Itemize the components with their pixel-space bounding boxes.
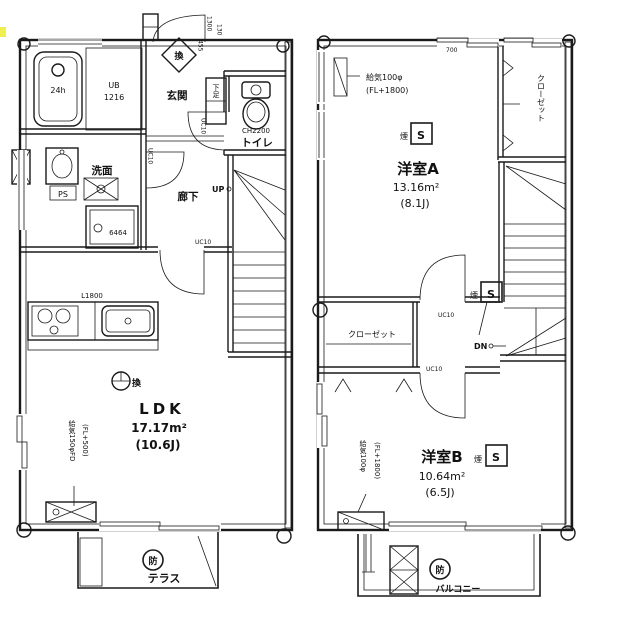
floor1-bathroom: 24h UB 1216 xyxy=(20,48,146,134)
floor1-hallway: 廊下 UC10 xyxy=(147,148,205,294)
dimension-700: 700 xyxy=(446,47,458,54)
ldk-vent-kanji: 換 xyxy=(132,377,142,389)
terrace-label: テラス xyxy=(148,572,181,585)
floor1-ldk: 換 LDK 17.17m² (10.6J) 給気150φFD (FL+500) xyxy=(68,372,187,506)
fireproof-mark-2: 防 xyxy=(435,564,444,576)
stairs-uc10: UC10 xyxy=(195,239,211,246)
washer-pan-size: 6464 xyxy=(109,229,127,237)
room-b-tatami: (6.5J) xyxy=(425,486,454,499)
dimension-130: 130 xyxy=(216,24,223,36)
smoke-detector-a-s: S xyxy=(417,129,425,142)
kitchen-sink xyxy=(102,306,154,336)
stairs-uc10-upper: UC10 xyxy=(438,312,454,319)
toilet-door-arc xyxy=(188,112,226,150)
ldk-area: 17.17m² xyxy=(131,421,187,435)
floor1-plan: 24h UB 1216 換 玄関 下足 1300 130 xyxy=(12,14,292,588)
kitchen-counter xyxy=(28,302,158,340)
stairs-up-label: UP xyxy=(212,185,224,194)
smoke-detector-b-s: S xyxy=(492,451,500,464)
dimension-1300: 1300 xyxy=(206,16,213,31)
floor2-closet-b: クローゼット xyxy=(326,329,412,392)
terrace-equipment xyxy=(80,538,102,586)
floor2-closet-a: クローゼット xyxy=(503,60,546,151)
toilet-ceiling-height: CH2200 xyxy=(242,127,270,135)
floor1-outer-walls xyxy=(20,40,292,530)
supply-air-a-label: 給気100φ xyxy=(366,72,403,82)
hallway-uc10: UC10 xyxy=(147,148,154,164)
floor1-washroom: PS 洗面 6464 xyxy=(12,148,184,248)
floor1-windows xyxy=(17,39,221,531)
floor1-toilet: CH2200 トイレ UC10 xyxy=(188,82,273,150)
floor1-stairs: UP UC10 xyxy=(195,170,285,343)
toilet-label: トイレ xyxy=(241,137,273,149)
room-b-area: 10.64m² xyxy=(419,470,466,483)
room-b-door-arc xyxy=(420,373,465,418)
floor2-room-b: 洋室B 10.64m² (6.5J) 煙 S 給気100φ (FL+1800) xyxy=(338,373,507,530)
supply-air-150-height: (FL+500) xyxy=(81,424,89,457)
entrance-label: 玄関 xyxy=(167,89,188,102)
bathtub-label: 24h xyxy=(50,86,65,95)
balcony-label: バルコニー xyxy=(436,584,481,595)
closet-b-label: クローゼット xyxy=(348,329,396,339)
room-a-label: 洋室A xyxy=(397,160,439,178)
shoe-cabinet-label: 下足 xyxy=(212,84,220,99)
scan-artifact xyxy=(0,27,6,37)
floorplan-page: 24h UB 1216 換 玄関 下足 1300 130 xyxy=(0,0,640,640)
floorplan-drawing: 24h UB 1216 換 玄関 下足 1300 130 xyxy=(0,0,640,640)
smoke-detector-stairs-kanji: 煙 xyxy=(470,291,478,300)
floor2-stairs: DN 煙 S UC10 UC10 xyxy=(424,166,566,373)
dimension-455: 455 xyxy=(197,40,204,52)
smoke-detector-b-kanji: 煙 xyxy=(474,455,482,464)
stairs-uc10-lower: UC10 xyxy=(426,366,442,373)
floor1-kitchen: L1800 xyxy=(28,292,158,350)
room-b-label: 洋室B xyxy=(421,448,462,466)
vent-diamond-kanji: 換 xyxy=(174,50,184,62)
toilet-uc10: UC10 xyxy=(200,118,207,134)
room-a-area: 13.16m² xyxy=(393,181,440,194)
closet-a-label: クローゼット xyxy=(537,74,546,122)
floor1-columns xyxy=(17,38,291,543)
floor2-room-a: 給気100φ (FL+1800) 煙 S 洋室A 13.16m² (8.1J) … xyxy=(334,47,465,302)
floor1-terrace: 防 テラス xyxy=(46,502,218,588)
smoke-detector-stairs-s: S xyxy=(487,288,495,301)
room-a-door-arc xyxy=(420,255,465,302)
unit-bath-size: 1216 xyxy=(104,93,124,102)
fireproof-mark: 防 xyxy=(148,555,157,567)
floor1-entrance: 換 玄関 下足 1300 130 455 xyxy=(143,14,226,124)
vanity-counter xyxy=(46,148,78,184)
stove xyxy=(32,306,78,336)
pipe-space-label: PS xyxy=(58,190,68,199)
supply-air-b-height: (FL+1800) xyxy=(373,442,381,479)
hallway-label: 廊下 xyxy=(178,190,199,203)
ldk-door-arc xyxy=(160,250,204,294)
supply-air-a-height: (FL+1800) xyxy=(366,86,408,95)
room-a-tatami: (8.1J) xyxy=(400,197,429,210)
washroom-label: 洗面 xyxy=(92,164,113,177)
unit-bath-label: UB xyxy=(108,81,119,90)
floor2-balcony: 防 バルコニー xyxy=(358,534,540,596)
floor2-interior-walls xyxy=(318,40,566,373)
stairs-dn-label: DN xyxy=(474,342,487,351)
kitchen-length-label: L1800 xyxy=(81,292,103,300)
ldk-tatami: (10.6J) xyxy=(135,438,180,452)
smoke-detector-a-kanji: 煙 xyxy=(400,132,408,141)
supply-air-150-label: 給気150φFD xyxy=(68,419,76,461)
ldk-label: LDK xyxy=(139,400,185,418)
supply-air-b-label: 給気100φ xyxy=(359,439,367,472)
floor2-plan: 給気100φ (FL+1800) 煙 S 洋室A 13.16m² (8.1J) … xyxy=(313,35,575,596)
